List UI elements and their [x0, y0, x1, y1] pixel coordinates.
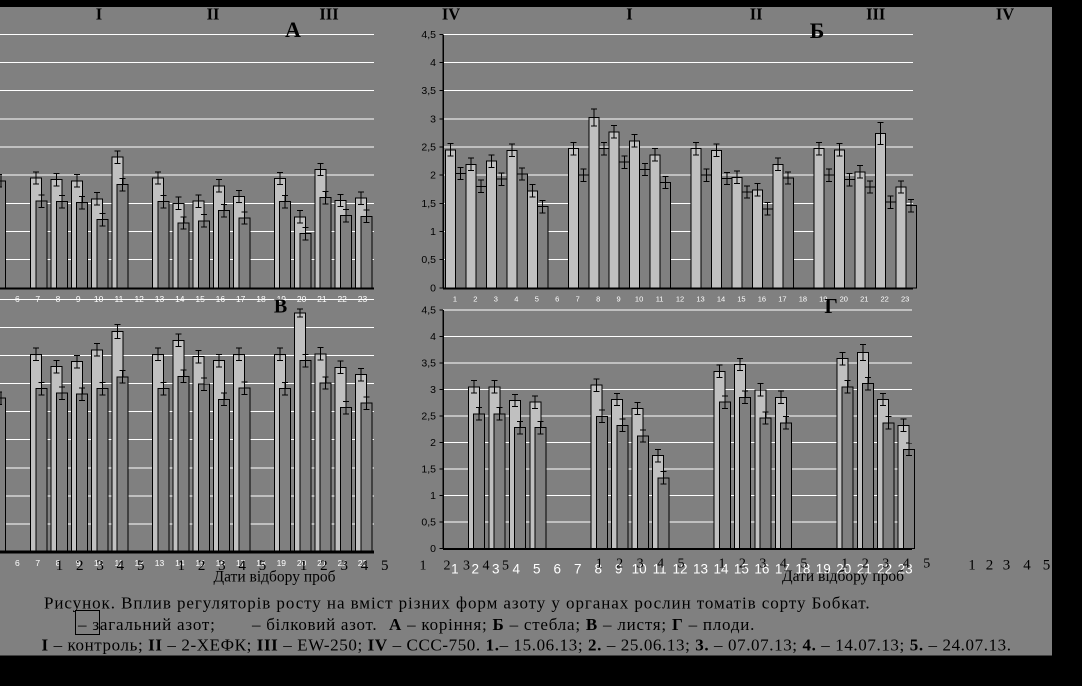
svg-text:3: 3 — [1003, 557, 1011, 573]
svg-text:9: 9 — [617, 295, 621, 304]
svg-text:3: 3 — [759, 557, 766, 572]
svg-text:4: 4 — [361, 558, 369, 574]
svg-text:4: 4 — [514, 295, 518, 304]
svg-text:7: 7 — [576, 295, 580, 304]
svg-text:22: 22 — [881, 295, 889, 304]
svg-text:6: 6 — [553, 561, 561, 576]
svg-text:А – коріння; Б – стебла; В – л: А – коріння; Б – стебла; В – листя; Г – … — [389, 615, 755, 634]
svg-text:2: 2 — [473, 295, 477, 304]
svg-text:4: 4 — [483, 559, 490, 574]
svg-text:14: 14 — [175, 294, 185, 304]
svg-text:23: 23 — [901, 295, 909, 304]
svg-text:4: 4 — [430, 57, 436, 69]
svg-text:4: 4 — [430, 331, 436, 343]
svg-text:2: 2 — [986, 557, 994, 573]
svg-text:17: 17 — [236, 294, 246, 304]
svg-text:20: 20 — [840, 295, 848, 304]
svg-text:II: II — [207, 4, 220, 23]
svg-text:2: 2 — [76, 558, 84, 574]
svg-text:1: 1 — [451, 561, 459, 576]
svg-text:3: 3 — [96, 558, 104, 574]
svg-text:3: 3 — [463, 559, 470, 574]
svg-text:5: 5 — [923, 557, 930, 572]
svg-text:5: 5 — [678, 557, 685, 572]
svg-text:– загальний азот;: – загальний азот; — [77, 615, 216, 634]
svg-text:4: 4 — [513, 561, 521, 576]
svg-text:21: 21 — [317, 294, 327, 304]
svg-text:0,5: 0,5 — [421, 254, 436, 266]
svg-text:2,5: 2,5 — [421, 142, 436, 154]
svg-text:7: 7 — [35, 558, 40, 568]
svg-text:III: III — [866, 4, 885, 23]
svg-text:3: 3 — [637, 557, 644, 572]
svg-text:16: 16 — [216, 294, 226, 304]
svg-text:13: 13 — [155, 558, 165, 568]
svg-text:3: 3 — [430, 384, 436, 396]
svg-text:7: 7 — [35, 294, 40, 304]
svg-text:20: 20 — [297, 294, 307, 304]
svg-text:3,5: 3,5 — [421, 85, 436, 97]
svg-text:2: 2 — [430, 437, 436, 449]
svg-text:4: 4 — [657, 557, 664, 572]
svg-text:8: 8 — [596, 295, 600, 304]
svg-text:1,5: 1,5 — [421, 198, 436, 210]
svg-text:3,5: 3,5 — [421, 357, 436, 369]
svg-text:9: 9 — [76, 294, 81, 304]
svg-text:Дати відбору проб: Дати відбору проб — [214, 569, 336, 586]
svg-text:4,5: 4,5 — [421, 305, 436, 317]
svg-text:Г: Г — [824, 294, 837, 318]
svg-text:А: А — [285, 17, 301, 42]
svg-text:Б: Б — [810, 18, 825, 43]
svg-text:Дати відбору проб: Дати відбору проб — [782, 568, 904, 585]
svg-text:5: 5 — [1043, 557, 1051, 573]
svg-text:2: 2 — [739, 557, 746, 572]
svg-text:3: 3 — [430, 113, 436, 125]
svg-text:10: 10 — [635, 295, 643, 304]
svg-text:III: III — [319, 4, 338, 23]
svg-text:IV: IV — [996, 4, 1014, 23]
svg-text:5: 5 — [137, 558, 145, 574]
svg-text:0,5: 0,5 — [421, 516, 436, 528]
svg-text:2: 2 — [198, 558, 206, 574]
svg-text:І – контроль; ІІ – 2-ХЕФК; ІІІ: І – контроль; ІІ – 2-ХЕФК; ІІІ – EW-250;… — [42, 636, 1012, 655]
svg-text:1: 1 — [430, 490, 436, 502]
svg-text:2: 2 — [616, 557, 623, 572]
svg-text:18: 18 — [799, 295, 807, 304]
svg-text:14: 14 — [717, 295, 725, 304]
svg-text:15: 15 — [195, 294, 205, 304]
svg-text:1: 1 — [453, 295, 457, 304]
svg-text:4: 4 — [117, 558, 125, 574]
svg-text:3: 3 — [492, 561, 500, 576]
svg-text:6: 6 — [15, 294, 20, 304]
svg-text:8: 8 — [56, 294, 61, 304]
svg-text:5: 5 — [533, 561, 541, 576]
svg-text:12: 12 — [134, 294, 144, 304]
svg-text:19: 19 — [277, 558, 287, 568]
svg-text:22: 22 — [337, 294, 347, 304]
svg-text:1: 1 — [719, 557, 726, 572]
svg-text:– білковий азот.: – білковий азот. — [251, 615, 377, 634]
svg-text:0: 0 — [430, 282, 436, 294]
svg-text:5: 5 — [381, 558, 389, 574]
svg-text:2: 2 — [430, 170, 436, 182]
svg-text:6: 6 — [555, 295, 559, 304]
svg-text:1: 1 — [596, 557, 603, 572]
svg-text:23: 23 — [358, 294, 368, 304]
svg-text:4,5: 4,5 — [421, 29, 436, 41]
svg-text:13: 13 — [155, 294, 165, 304]
svg-text:13: 13 — [696, 295, 704, 304]
svg-text:15: 15 — [737, 295, 745, 304]
svg-text:2,5: 2,5 — [421, 410, 436, 422]
svg-text:1: 1 — [56, 558, 64, 574]
svg-text:II: II — [750, 4, 763, 23]
svg-text:1: 1 — [430, 226, 436, 238]
svg-text:7: 7 — [574, 561, 582, 576]
svg-text:1: 1 — [178, 558, 186, 574]
svg-text:21: 21 — [860, 295, 868, 304]
svg-text:17: 17 — [778, 295, 786, 304]
svg-text:В: В — [274, 296, 287, 318]
svg-text:4: 4 — [1023, 557, 1031, 573]
svg-text:IV: IV — [442, 4, 460, 23]
svg-text:10: 10 — [94, 294, 104, 304]
svg-text:1: 1 — [968, 557, 976, 573]
svg-text:12: 12 — [676, 295, 684, 304]
svg-text:I: I — [626, 4, 632, 23]
svg-text:18: 18 — [256, 294, 266, 304]
svg-text:2: 2 — [444, 559, 451, 574]
svg-text:11: 11 — [114, 294, 123, 304]
svg-text:5: 5 — [502, 559, 509, 574]
svg-text:0: 0 — [430, 543, 436, 555]
svg-text:13: 13 — [693, 561, 708, 576]
svg-text:1,5: 1,5 — [421, 463, 436, 475]
svg-text:I: I — [96, 4, 102, 23]
svg-text:Рисунок. Вплив регуляторів рос: Рисунок. Вплив регуляторів росту на вміс… — [44, 593, 871, 612]
svg-text:3: 3 — [494, 295, 498, 304]
svg-text:16: 16 — [758, 295, 766, 304]
svg-text:5: 5 — [535, 295, 539, 304]
svg-text:6: 6 — [15, 558, 20, 568]
svg-text:11: 11 — [656, 295, 664, 304]
svg-text:3: 3 — [340, 558, 348, 574]
svg-text:2: 2 — [472, 561, 480, 576]
svg-text:1: 1 — [420, 559, 427, 574]
